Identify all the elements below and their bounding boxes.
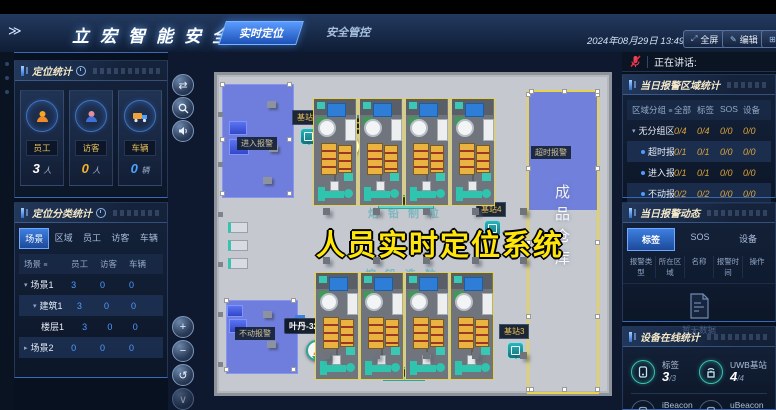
panel-alarm-feed: 当日报警动态 标签 SOS 设备 报警类型所在区域名称报警时间操作 暂无数据 <box>622 202 776 322</box>
clock-icon <box>96 208 106 218</box>
selection-handle[interactable] <box>529 387 534 392</box>
panel-title: 当日报警区域统计 <box>640 77 720 92</box>
selection-handle[interactable] <box>291 298 296 303</box>
workbench <box>228 240 248 251</box>
zoom-in-button[interactable]: + <box>172 316 194 338</box>
tab-visitor[interactable]: 访客 <box>106 228 134 249</box>
reset-view-button[interactable]: ↺ <box>172 364 194 386</box>
letterbox-top <box>0 0 776 14</box>
wall-pillar <box>218 362 223 367</box>
ibeacon-icon <box>638 406 648 410</box>
selection-handle[interactable] <box>562 387 567 392</box>
device-stat-ubeacon: uBeacon 0/0 <box>699 394 767 410</box>
area-name: 熔铅制粒 <box>328 205 488 221</box>
table-row[interactable]: 楼层1 300 <box>19 316 163 337</box>
zone-label: 不动报警 <box>235 327 275 340</box>
zone-still-alarm[interactable]: 不动报警 <box>226 300 298 374</box>
selection-handle[interactable] <box>224 367 229 372</box>
table-row[interactable]: 超时报警 0/10/10/00/0 <box>627 141 771 162</box>
caret-down-icon: ▾ <box>632 127 636 135</box>
zone-entry-alarm[interactable]: 进入报警 <box>222 84 294 198</box>
truck-icon <box>132 110 149 123</box>
table-row[interactable]: ▸场景2 000 <box>19 337 163 358</box>
tab-realtime-location[interactable]: 实时定位 <box>218 21 304 45</box>
table-row[interactable]: 不动报警 0/20/20/00/0 <box>627 183 771 204</box>
table-row[interactable]: ▾无分组区域 0/40/40/00/0 <box>627 120 771 141</box>
search-icon <box>178 103 189 114</box>
warehouse-label: 成品仓库 <box>551 184 572 364</box>
app-logo: 立宏智能安全 <box>72 22 240 47</box>
wall-pillar <box>218 312 223 317</box>
forklift-object <box>229 121 247 135</box>
caret-down-icon: ▾ <box>33 302 37 310</box>
selection-handle[interactable] <box>287 82 292 87</box>
search-button[interactable] <box>172 97 194 119</box>
device-stat-uwb: UWB基站 4/4 <box>699 353 767 394</box>
bullet-dot <box>641 150 645 154</box>
collapse-toolbar-button[interactable]: ∨ <box>172 388 194 410</box>
visitor-icon <box>84 109 99 124</box>
pillar <box>472 352 479 359</box>
machine-bay <box>313 98 357 206</box>
more-button[interactable]: ⊞ <box>761 30 776 48</box>
forklift-object <box>227 305 243 317</box>
selection-handle[interactable] <box>526 166 531 171</box>
audio-button[interactable] <box>172 120 194 142</box>
stat-label: 员工 <box>26 140 57 156</box>
zoom-out-button[interactable]: − <box>172 340 194 362</box>
tab-employee[interactable]: 员工 <box>78 228 106 249</box>
pillar <box>373 208 380 215</box>
microphone-muted-icon <box>630 55 641 68</box>
table-row[interactable]: ▾建筑1 300 <box>19 295 163 316</box>
pillar <box>472 257 479 264</box>
panel-title: 当日报警动态 <box>640 205 700 220</box>
pillar <box>373 352 380 359</box>
stat-card-vehicle: 车辆 0 辆 <box>118 90 162 186</box>
stat-label: 车辆 <box>124 140 155 156</box>
tab-sos[interactable]: SOS <box>677 228 723 251</box>
map-canvas[interactable]: 进入报警 不动报警 超时报警 成品仓库 熔铅制粒 熔铅造粒 基站2 基站4 基站… <box>168 52 622 410</box>
stat-card-employee: 员工 3 人 <box>20 90 64 186</box>
caret-right-icon: ▸ <box>24 344 28 352</box>
classification-tabs: 场景 区域 员工 访客 车辆 <box>15 223 167 249</box>
table-row[interactable]: 进入报警 0/10/10/00/0 <box>627 162 771 183</box>
zone-label: 超时报警 <box>531 146 571 159</box>
machine-bay <box>360 272 404 380</box>
stat-card-visitor: 访客 0 人 <box>69 90 113 186</box>
machine-bay <box>315 272 359 380</box>
edit-button[interactable]: ✎ 编辑 <box>722 30 766 48</box>
table-header: 区域分组 ≡ 全部 标签 SOS 设备 <box>627 100 771 120</box>
layer-swap-button[interactable]: ⇄ <box>172 74 194 96</box>
speaker-icon <box>178 126 189 136</box>
collapse-arrows-icon[interactable]: ≫ <box>8 23 20 39</box>
selection-handle[interactable] <box>562 89 567 94</box>
wall-pillar <box>218 112 223 117</box>
tab-device[interactable]: 设备 <box>725 228 771 251</box>
pillar <box>423 257 430 264</box>
panel-positioning-stats: 定位统计 员工 3 人 访客 0 人 <box>14 60 168 198</box>
tab-safety-control[interactable]: 安全管控 <box>306 21 389 43</box>
panel-classification-stats: 定位分类统计 场景 区域 员工 访客 车辆 场景 ≡ 员工 访客 车辆 ▾场景1… <box>14 202 168 378</box>
workbench <box>228 258 248 269</box>
machine-bay <box>450 272 494 380</box>
grid-icon: ⊞ <box>769 35 776 44</box>
fullscreen-button[interactable]: ⤢ 全屏 <box>683 30 726 48</box>
divider <box>647 56 648 68</box>
panel-devices-online: 设备在线统计 标签 3/3 UWB基站 4/4 iBeacon 0/0 uBea… <box>622 326 776 410</box>
selection-handle[interactable] <box>595 387 600 392</box>
selection-handle[interactable] <box>595 89 600 94</box>
tab-vehicle[interactable]: 车辆 <box>135 228 163 249</box>
pillar <box>472 208 479 215</box>
wall-pillar <box>218 212 223 217</box>
station-label[interactable]: 基站3 <box>499 324 529 339</box>
machine-bay <box>405 98 449 206</box>
uwb-station-icon <box>705 366 717 378</box>
panel-title: 定位分类统计 <box>32 205 92 220</box>
pillar <box>423 208 430 215</box>
selection-handle[interactable] <box>224 298 229 303</box>
device-stat-ibeacon: iBeacon 0/0 <box>631 394 699 410</box>
employee-icon <box>35 109 50 124</box>
selection-handle[interactable] <box>526 314 531 319</box>
pillar <box>520 352 527 359</box>
panel-title: 设备在线统计 <box>640 329 700 344</box>
device-stat-tag: 标签 3/3 <box>631 353 699 394</box>
selection-handle[interactable] <box>287 137 292 142</box>
pillar <box>520 257 527 264</box>
tag-device-icon <box>638 366 648 378</box>
pillar <box>373 257 380 264</box>
caret-down-icon: ▾ <box>24 281 28 289</box>
speaking-label: 正在讲话: <box>654 54 697 69</box>
selection-handle[interactable] <box>595 314 600 319</box>
selection-handle[interactable] <box>595 166 600 171</box>
pillar <box>323 208 330 215</box>
panel-alarm-regions: 当日报警区域统计 区域分组 ≡ 全部 标签 SOS 设备 ▾无分组区域 0/40… <box>622 74 776 198</box>
selection-handle[interactable] <box>220 137 225 142</box>
machine-bay <box>405 272 449 380</box>
pillar <box>323 352 330 359</box>
fullscreen-icon: ⤢ <box>691 34 697 44</box>
datetime: 2024年08月29日 13:49:34 <box>587 33 697 47</box>
workbench <box>228 222 248 233</box>
ubeacon-icon <box>706 406 716 410</box>
bullet-dot <box>641 171 645 175</box>
selection-handle[interactable] <box>220 191 225 196</box>
tab-scene[interactable]: 场景 <box>19 228 49 249</box>
pillar <box>520 208 527 215</box>
feed-columns: 报警类型所在区域名称报警时间操作 <box>623 251 775 284</box>
selection-handle[interactable] <box>529 89 534 94</box>
wall-pillar <box>218 262 223 267</box>
selection-handle[interactable] <box>220 82 225 87</box>
main-nav: 实时定位 安全管控 <box>222 21 386 45</box>
zone-label: 进入报警 <box>237 137 277 150</box>
pillar <box>323 257 330 264</box>
header-bar: ≫ 立宏智能安全 实时定位 安全管控 2024年08月29日 13:49:34 … <box>0 14 776 53</box>
empty-document-icon <box>686 292 712 320</box>
edit-icon: ✎ <box>730 35 737 44</box>
machine-bay <box>359 98 403 206</box>
stat-label: 访客 <box>75 140 106 156</box>
wall-pillar <box>218 162 223 167</box>
table-row[interactable]: ▾场景1 300 <box>19 274 163 295</box>
table-header: 场景 ≡ 员工 访客 车辆 <box>19 254 163 274</box>
menu-icon: ≡ <box>43 262 47 269</box>
speaking-bar: 正在讲话: <box>622 52 776 72</box>
selection-handle[interactable] <box>291 367 296 372</box>
clock-icon <box>76 66 86 76</box>
tab-tag[interactable]: 标签 <box>627 228 675 251</box>
left-rail <box>0 52 14 410</box>
bullet-dot <box>641 192 645 196</box>
pillar <box>423 352 430 359</box>
tab-region[interactable]: 区域 <box>49 228 77 249</box>
app-window: ≫ 立宏智能安全 实时定位 安全管控 2024年08月29日 13:49:34 … <box>0 0 776 410</box>
panel-title: 定位统计 <box>32 63 72 78</box>
machine-bay <box>451 98 495 206</box>
alarm-feed-tabs: 标签 SOS 设备 <box>623 223 775 251</box>
selection-handle[interactable] <box>287 191 292 196</box>
